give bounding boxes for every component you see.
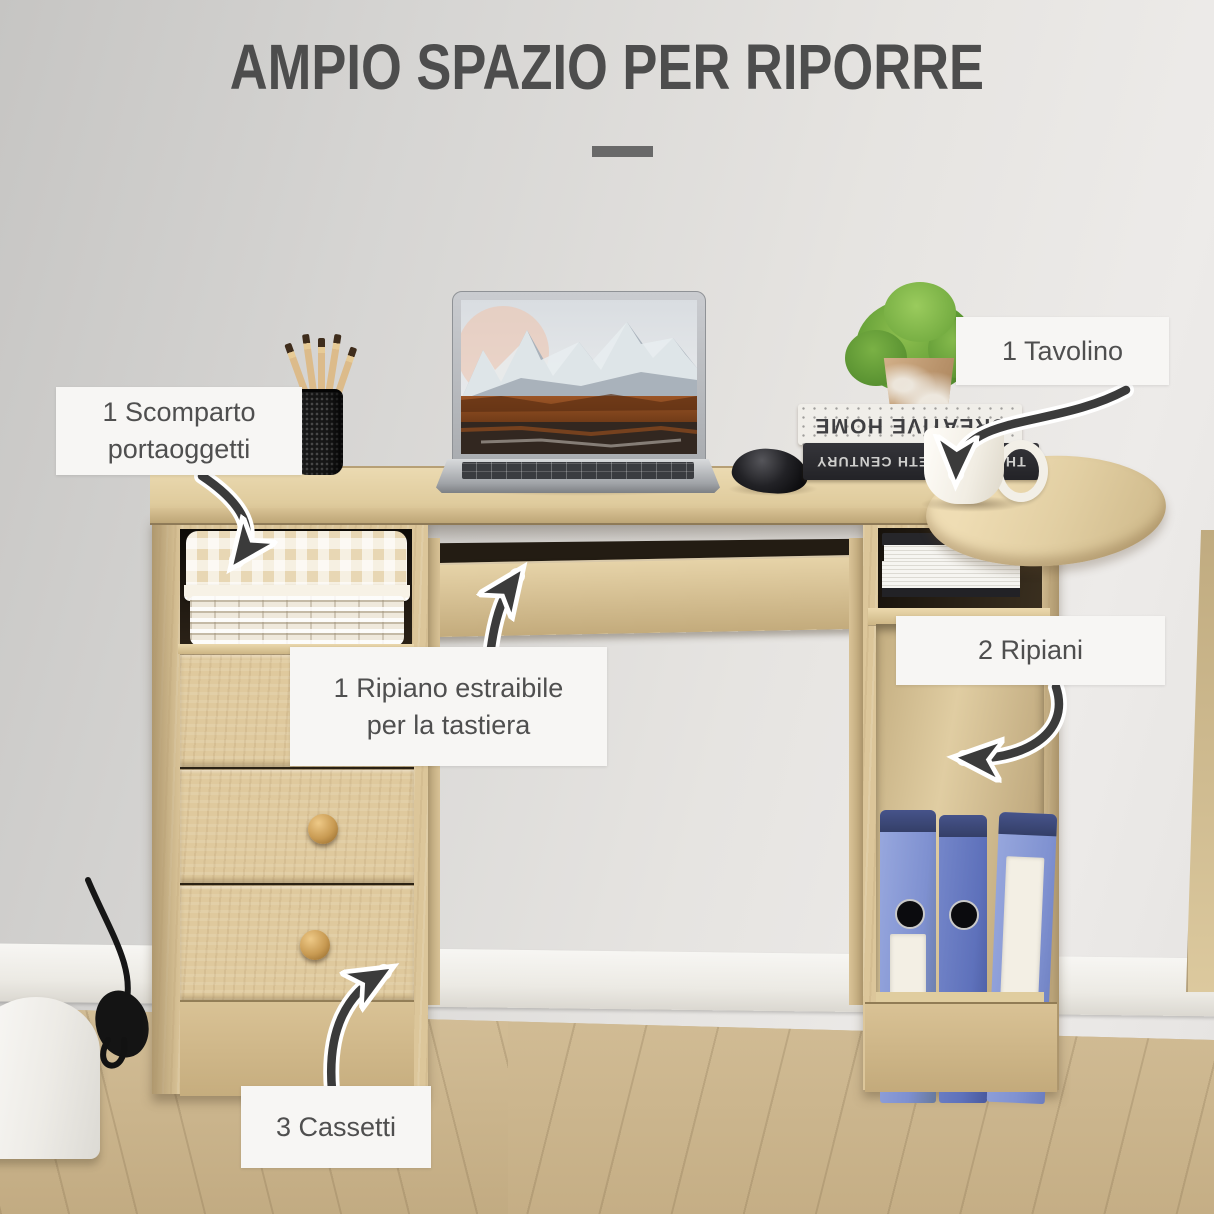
arrow-tastiera [491,576,517,648]
callout-tastiera-line1: 1 Ripiano estraibile [334,670,564,707]
callout-cassetti-label: 3 Cassetti [276,1109,396,1146]
arrow-cassetti [331,972,384,1090]
callout-scomparto: 1 Scomparto portaoggetti [56,387,302,475]
callout-tavolino: 1 Tavolino [956,317,1169,385]
callout-ripiani-label: 2 Ripiani [978,632,1083,669]
arrow-scomparto [202,476,247,560]
product-scene: CREATIVE HOME THE TWENTIETH CENTURY AMPI… [0,0,1214,1214]
callout-ripiani: 2 Ripiani [896,616,1165,685]
callout-cassetti: 3 Cassetti [241,1086,431,1168]
callout-tastiera-line2: per la tastiera [367,707,531,744]
callout-scomparto-line2: portaoggetti [108,431,251,468]
arrow-ripiani [964,687,1059,758]
callout-scomparto-line1: 1 Scomparto [102,394,255,431]
callout-tavolino-label: 1 Tavolino [1002,333,1123,370]
arrow-tavolino [956,390,1126,474]
callout-arrows [0,0,1214,1214]
callout-tastiera: 1 Ripiano estraibile per la tastiera [290,647,607,766]
